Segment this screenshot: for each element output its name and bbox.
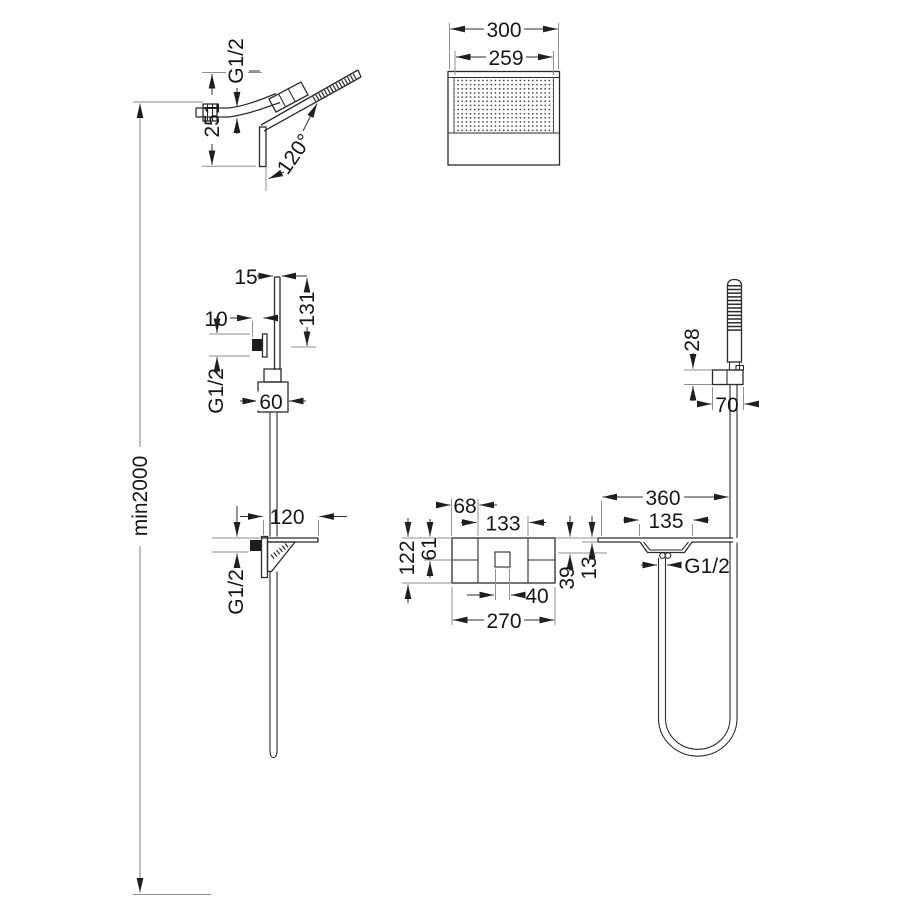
dim-label-mixer-center: 133 bbox=[485, 513, 520, 536]
dim-label-spout-front-width: 360 bbox=[645, 487, 680, 510]
dim-label-head-thread: G1/2 bbox=[225, 38, 248, 84]
view-holder-side: 15 131 10 G1/2 60 bbox=[204, 266, 319, 537]
dim-label-mixer-left: 68 bbox=[453, 495, 476, 518]
head-panel-bottom bbox=[264, 77, 361, 131]
shower-system-dimension-drawing: min2000 G1/2 251 bbox=[0, 0, 900, 900]
head-spray-face bbox=[454, 78, 554, 134]
dim-label-bracket-height: 28 bbox=[681, 328, 704, 351]
view-head-front: 300 259 bbox=[448, 19, 560, 165]
dim-label-knob-width: 40 bbox=[525, 585, 548, 608]
head-swivel-joint bbox=[269, 82, 308, 112]
dim-label-head-width: 300 bbox=[486, 19, 521, 42]
view-hand-shower: 28 70 bbox=[681, 280, 758, 539]
head-spray-hatching bbox=[314, 76, 357, 100]
dim-label-spout-front-thread: G1/2 bbox=[684, 555, 730, 578]
dim-label-basin-width: 135 bbox=[648, 510, 683, 533]
hand-shower-handle bbox=[728, 280, 742, 363]
dim-label-head-height: 251 bbox=[201, 102, 224, 137]
dim-label-arm-length: 131 bbox=[296, 291, 319, 326]
dim-min-height: min2000 bbox=[129, 102, 211, 895]
spout-fitting bbox=[250, 540, 261, 551]
head-wall-plate bbox=[260, 127, 267, 167]
technical-drawing-page: min2000 G1/2 251 bbox=[0, 0, 900, 900]
view-spout-side: 120 G1/2 bbox=[212, 506, 347, 758]
dim-label-escutcheon-width: 60 bbox=[259, 391, 282, 414]
dim-label-arm-thickness: 15 bbox=[234, 266, 257, 289]
view-head-side: G1/2 251 120° bbox=[196, 38, 361, 191]
dim-label-basin-depth: 39 bbox=[556, 566, 579, 589]
dim-label-holder-thread: G1/2 bbox=[205, 368, 228, 414]
head-panel-top bbox=[261, 70, 358, 125]
dim-label-spray-width: 259 bbox=[488, 47, 523, 70]
view-mixer-front: 68 133 61 122 40 270 bbox=[396, 495, 555, 633]
dim-label-projection-10: 10 bbox=[204, 308, 227, 331]
dim-label-shelf-thickness: 13 bbox=[578, 556, 601, 579]
dim-label-mixer-height: 122 bbox=[396, 540, 419, 575]
dim-label-head-angle: 120° bbox=[273, 130, 317, 179]
dim-label-mixer-width: 270 bbox=[486, 610, 521, 633]
dim-label-spout-side-thread: G1/2 bbox=[225, 569, 248, 615]
spout-under-bracket bbox=[268, 542, 296, 572]
supply-fitting bbox=[252, 339, 262, 351]
spout-wall-plate bbox=[262, 537, 268, 578]
mixer-knob bbox=[495, 552, 510, 567]
dim-label-mixer-upper-height: 61 bbox=[418, 537, 441, 560]
view-spout-front: 360 135 39 13 G1/2 bbox=[556, 487, 737, 756]
dim-label-bracket-width: 70 bbox=[715, 394, 738, 417]
dim-label-spout-projection: 120 bbox=[269, 506, 304, 529]
hand-shower-bracket bbox=[713, 370, 744, 385]
dim-label-min2000: min2000 bbox=[129, 456, 152, 537]
